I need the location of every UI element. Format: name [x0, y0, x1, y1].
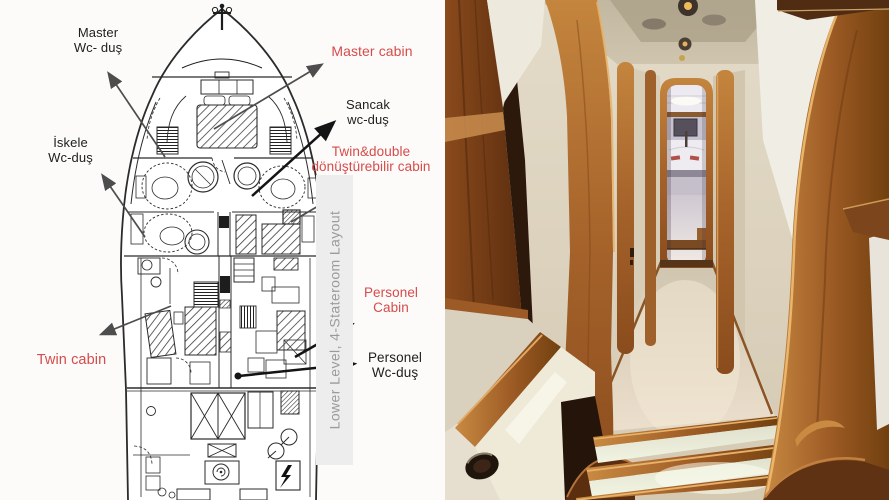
port-door-frame: [617, 62, 634, 354]
starboard-door-frame: [716, 70, 734, 374]
deck-plan-panel: Lower Level, 4-Stateroom Layout Master W…: [0, 0, 445, 500]
label-sancak-wc: Sancak wc-duş: [330, 98, 406, 128]
door-threshold: [660, 260, 713, 267]
aft-cabin-view: [667, 85, 706, 265]
door-hinge-icon: [630, 248, 634, 257]
label-personel-cabin: Personel Cabin: [352, 285, 430, 316]
composite-image: Lower Level, 4-Stateroom Layout Master W…: [0, 0, 889, 500]
recessed-light-icon: [679, 55, 685, 61]
aft-cabin-doorway: [660, 78, 713, 268]
deck-plan-drawing: [0, 0, 445, 500]
label-personel-wc: Personel Wc-duş: [355, 350, 435, 381]
corridor-photo: [445, 0, 889, 500]
label-master-cabin: Master cabin: [322, 44, 422, 60]
watermark-lower-level: Lower Level, 4-Stateroom Layout: [327, 211, 343, 430]
watermark-band: Lower Level, 4-Stateroom Layout: [316, 175, 353, 465]
label-twin-cabin: Twin cabin: [24, 352, 119, 369]
ceiling-speaker-icon: [702, 15, 726, 26]
corridor-photo-panel: [445, 0, 889, 500]
label-twin-double: Twin&double dönüştürebilir cabin: [300, 144, 442, 175]
ceiling-speaker-icon: [642, 19, 666, 30]
door-hinge-icon: [630, 260, 633, 265]
label-master-wc: Master Wc- duş: [58, 26, 138, 56]
label-iskele-wc: İskele Wc-duş: [33, 136, 108, 166]
recessed-light-icon: [679, 38, 692, 51]
cabin-ceiling-light-icon: [671, 97, 701, 106]
